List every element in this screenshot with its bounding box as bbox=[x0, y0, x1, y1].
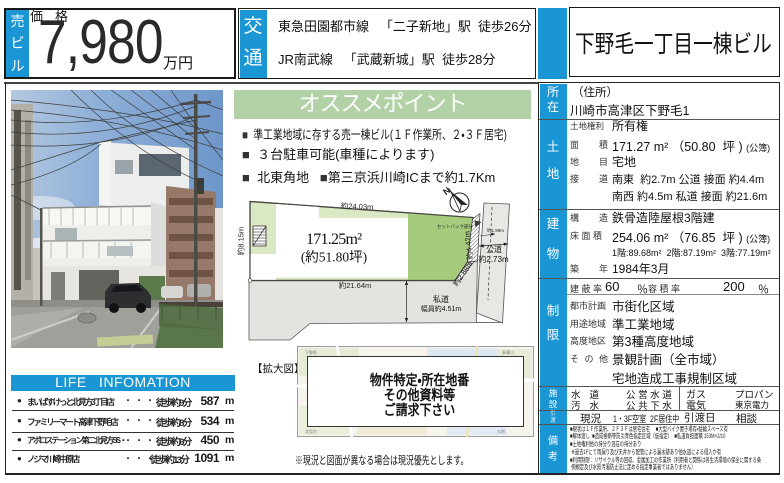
svg-text:(約51.80坪): (約51.80坪) bbox=[301, 250, 367, 265]
svg-text:N: N bbox=[441, 185, 452, 197]
svg-text:約8.15m: 約8.15m bbox=[236, 227, 246, 255]
svg-text:久地: 久地 bbox=[497, 428, 505, 434]
svg-text:北見方: 北見方 bbox=[305, 428, 317, 434]
svg-text:約21.64m: 約21.64m bbox=[339, 280, 372, 290]
svg-text:171.25m²: 171.25m² bbox=[306, 231, 362, 248]
svg-text:約24.03m: 約24.03m bbox=[341, 200, 374, 211]
svg-text:私道: 私道 bbox=[433, 294, 449, 304]
svg-text:約2.73m: 約2.73m bbox=[478, 254, 509, 264]
svg-text:約1.99m: 約1.99m bbox=[487, 227, 504, 234]
svg-text:下野毛: 下野毛 bbox=[305, 349, 317, 355]
svg-text:幅員約4.51m: 幅員約4.51m bbox=[421, 304, 462, 313]
svg-text:セットバック部分: セットバック部分 bbox=[437, 223, 473, 230]
svg-text:多摩川: 多摩川 bbox=[502, 349, 514, 355]
